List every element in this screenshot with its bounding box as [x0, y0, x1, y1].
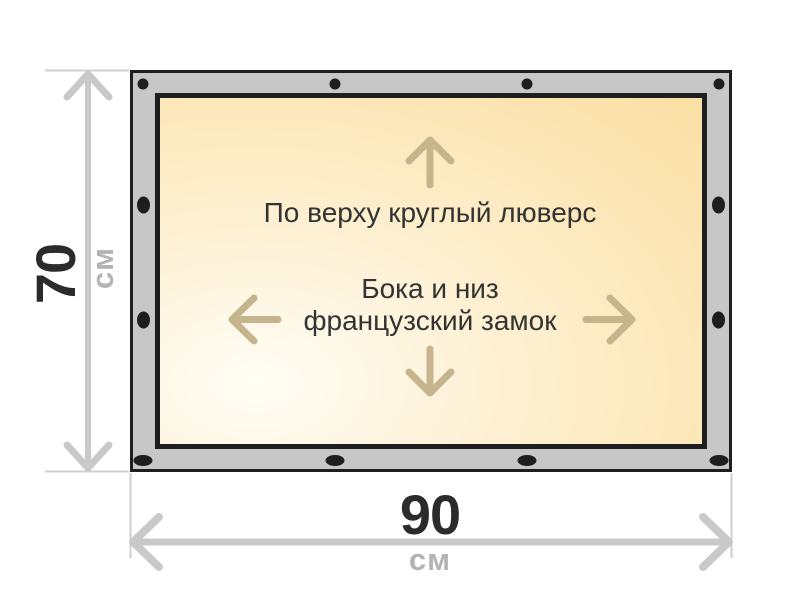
diagram-canvas: По верху круглый люверс Бока и низ франц…	[0, 0, 800, 600]
height-dimension: 70 см	[24, 71, 129, 472]
width-unit: см	[409, 542, 451, 577]
french-lock-icon	[712, 312, 725, 329]
top-edge-note: По верху круглый люверс	[264, 197, 597, 228]
round-grommet-icon	[138, 79, 149, 90]
width-value: 90	[400, 483, 460, 546]
round-grommet-icon	[522, 79, 533, 90]
banner-spec-diagram: По верху круглый люверс Бока и низ франц…	[0, 0, 800, 600]
french-lock-icon	[134, 455, 153, 466]
height-value: 70	[24, 244, 87, 304]
center-note-line1: Бока и низ	[361, 273, 499, 304]
center-note-line2: французский замок	[304, 305, 558, 336]
french-lock-icon	[137, 312, 150, 329]
round-grommet-icon	[330, 79, 341, 90]
french-lock-icon	[712, 197, 725, 214]
french-lock-icon	[137, 197, 150, 214]
french-lock-icon	[518, 455, 537, 466]
french-lock-icon	[710, 455, 729, 466]
height-unit: см	[85, 247, 120, 289]
round-grommet-icon	[714, 79, 725, 90]
width-dimension: 90 см	[131, 473, 732, 577]
french-lock-icon	[326, 455, 345, 466]
